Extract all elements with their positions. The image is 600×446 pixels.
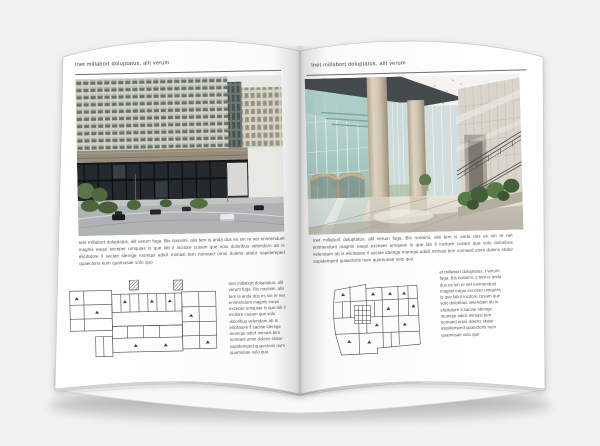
- header-rule: [75, 70, 281, 75]
- floor-plan-drawing: [328, 276, 425, 364]
- building-exterior-photo: [75, 75, 284, 236]
- lobby-interior-photo: [305, 74, 524, 235]
- page-header: Inet millabort doluptatus, alit verum: [75, 60, 170, 68]
- brochure-mockup-scene: Inet millabort doluptatus, alit verum: [0, 0, 600, 446]
- left-page: Inet millabort doluptatus, alit verum: [53, 27, 304, 397]
- floor-plan-drawing: [66, 278, 220, 366]
- caption-column: Inet millabort doluptatus, alit verum fu…: [228, 280, 287, 356]
- right-page: Inet millabort doluptatus, alit verum: [295, 27, 550, 398]
- body-paragraph: Inet millabort doluptatus, alit verum fu…: [79, 236, 286, 268]
- body-paragraph: Inet millabort doluptatus, alit verum fu…: [313, 233, 514, 266]
- caption-column: et millabort doluptatus, t verum fuga. B…: [439, 268, 503, 338]
- page-header: Inet millabort doluptatus, alit verum: [311, 60, 406, 68]
